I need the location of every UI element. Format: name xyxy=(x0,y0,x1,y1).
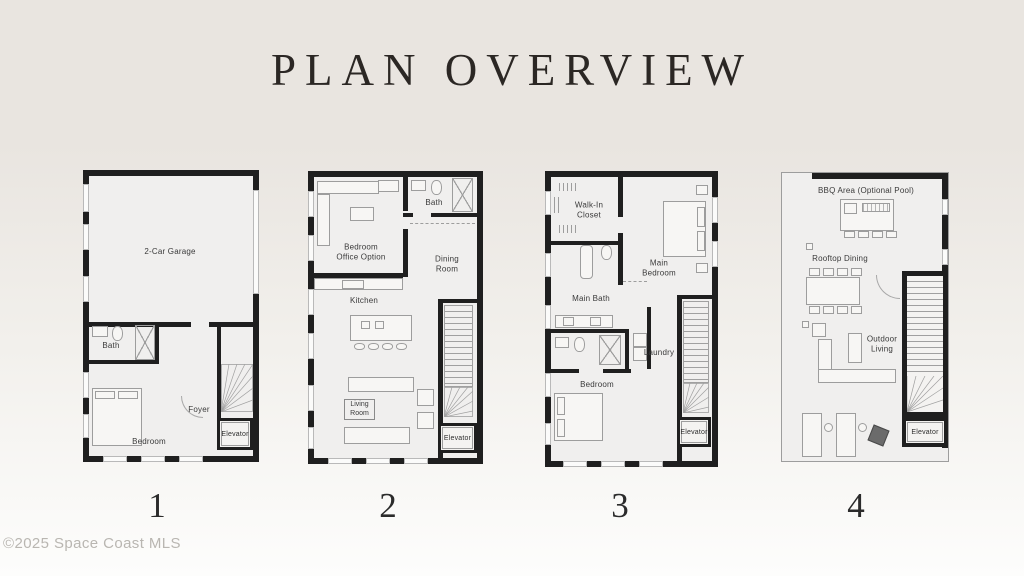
window-gap xyxy=(83,276,89,302)
window-gap xyxy=(103,456,127,462)
wall xyxy=(438,299,477,303)
window-gap xyxy=(639,461,663,467)
wall xyxy=(812,173,948,179)
sink xyxy=(555,337,569,348)
floor-plan-1: Elevator 2-Car Garage Bath Bedroom Foyer xyxy=(83,170,259,462)
page-title: PLAN OVERVIEW xyxy=(0,44,1024,96)
window-gap xyxy=(179,456,203,462)
nightstand xyxy=(696,263,708,273)
sink xyxy=(590,317,601,326)
window-gap xyxy=(308,333,314,359)
room-label-bbq: BBQ Area (Optional Pool) xyxy=(818,186,914,196)
stair-fan xyxy=(907,376,943,412)
wall xyxy=(403,213,413,217)
sofa xyxy=(348,377,414,392)
chair xyxy=(823,306,834,314)
floor-plan-2: Living Room Elevator Bedroom Office Opti… xyxy=(308,171,483,464)
chair xyxy=(851,306,862,314)
window-gap xyxy=(545,253,551,277)
stool xyxy=(396,343,407,350)
window-gap xyxy=(942,249,948,265)
sink xyxy=(563,317,574,326)
pillow xyxy=(697,207,705,227)
wall xyxy=(89,360,159,364)
stool xyxy=(844,231,855,238)
island-sink xyxy=(375,321,384,329)
chair xyxy=(809,306,820,314)
wall xyxy=(551,329,625,333)
sofa xyxy=(344,427,410,444)
window-gap xyxy=(141,456,165,462)
toilet xyxy=(574,337,585,352)
elevator-label: Elevator xyxy=(681,421,707,443)
window-gap xyxy=(712,241,718,267)
window-gap xyxy=(83,414,89,438)
hanger-rod xyxy=(559,183,577,191)
wall xyxy=(551,369,579,373)
door-gap xyxy=(83,184,89,212)
door-arc xyxy=(876,275,900,299)
wall xyxy=(677,295,712,299)
washer-dryer xyxy=(633,333,647,347)
window-gap xyxy=(563,461,587,467)
room-label-kitchen: Kitchen xyxy=(350,296,378,306)
stool xyxy=(886,231,897,238)
elevator-label: Elevator xyxy=(907,422,943,442)
chair xyxy=(823,268,834,276)
sofa xyxy=(317,194,330,246)
wall xyxy=(942,215,948,249)
elevator: Elevator xyxy=(902,417,948,447)
window-gap xyxy=(366,458,390,464)
grill xyxy=(862,203,890,212)
stool xyxy=(872,231,883,238)
side-table xyxy=(858,423,867,432)
room-label-dining: Dining Room xyxy=(435,255,459,276)
elevator: Elevator xyxy=(677,417,711,447)
hidden-wall xyxy=(623,281,647,282)
room-label-garage: 2-Car Garage xyxy=(144,247,195,257)
armchair xyxy=(417,389,434,406)
stool xyxy=(368,343,379,350)
bbq-sink xyxy=(844,203,857,214)
window-gap xyxy=(545,423,551,445)
plan-number-4: 4 xyxy=(847,486,865,526)
wall xyxy=(625,329,629,369)
plan-number-1: 1 xyxy=(148,486,166,526)
hanger-rod xyxy=(554,197,562,213)
window-gap xyxy=(328,458,352,464)
toilet xyxy=(431,180,442,195)
window-gap xyxy=(308,385,314,411)
garage-door-gap xyxy=(253,190,259,294)
elevator-label: Elevator xyxy=(442,427,473,449)
closet-hatch xyxy=(410,223,475,224)
stool xyxy=(382,343,393,350)
stairs xyxy=(444,305,473,417)
room-label-outdoor-living: Outdoor Living xyxy=(867,335,897,356)
pillow xyxy=(557,419,565,437)
floor-plan-4: Elevator BBQ Area (Optional Pool) Roofto… xyxy=(781,172,949,462)
wall xyxy=(155,322,159,364)
window-gap xyxy=(308,235,314,261)
stairwell xyxy=(902,271,948,417)
elevator: Elevator xyxy=(438,423,477,453)
chair xyxy=(837,306,848,314)
pillow xyxy=(557,397,565,415)
stair-fan xyxy=(683,383,709,413)
window-gap xyxy=(308,427,314,449)
room-label-bath: Bath xyxy=(425,198,442,208)
side-table xyxy=(812,323,826,337)
stool xyxy=(858,231,869,238)
cooktop xyxy=(342,280,364,289)
room-label-main-bath: Main Bath xyxy=(572,294,610,304)
stairs xyxy=(221,364,253,412)
room-label-closet: Walk-In Closet xyxy=(575,201,603,222)
room-label-bedroom: Bedroom xyxy=(132,437,166,447)
chair xyxy=(851,268,862,276)
room-label-bath: Bath xyxy=(102,341,119,351)
lounge-chair xyxy=(802,413,822,457)
stairs xyxy=(683,301,709,413)
island-sink xyxy=(361,321,370,329)
room-label-bedroom-office: Bedroom Office Option xyxy=(336,243,385,264)
room-label-foyer: Foyer xyxy=(188,405,209,415)
wall xyxy=(209,322,253,327)
wall xyxy=(431,213,477,217)
towel xyxy=(867,424,889,446)
elevator-label: Elevator xyxy=(221,422,249,446)
window-gap xyxy=(942,199,948,215)
lounge-chair xyxy=(836,413,856,457)
plan-number-3: 3 xyxy=(611,486,629,526)
coffee-table xyxy=(350,207,374,221)
room-label-living: Living Room xyxy=(344,399,375,420)
window-gap xyxy=(712,197,718,223)
room-label-rooftop-dining: Rooftop Dining xyxy=(812,254,868,264)
stair-fan xyxy=(444,387,473,417)
wall xyxy=(618,177,623,217)
room-label-main-bedroom: Main Bedroom xyxy=(633,259,686,280)
window-gap xyxy=(545,191,551,215)
window-gap xyxy=(308,191,314,217)
window-gap xyxy=(308,289,314,315)
shower xyxy=(452,178,473,212)
pillow xyxy=(95,391,115,399)
planter xyxy=(806,243,813,250)
hanger-rod xyxy=(559,225,577,233)
wall xyxy=(647,307,651,369)
chair xyxy=(809,268,820,276)
room-label-bedroom: Bedroom xyxy=(580,380,614,390)
sink xyxy=(411,180,426,191)
coffee-table xyxy=(848,333,862,363)
armchair xyxy=(417,412,434,429)
window-gap xyxy=(404,458,428,464)
chair xyxy=(837,268,848,276)
window-gap xyxy=(545,305,551,329)
nightstand xyxy=(696,185,708,195)
window-gap xyxy=(83,224,89,250)
planter xyxy=(802,321,809,328)
window-gap xyxy=(601,461,625,467)
toilet xyxy=(112,326,123,341)
wall xyxy=(403,177,408,211)
sink xyxy=(92,326,108,337)
shower xyxy=(135,325,155,360)
window-gap xyxy=(83,372,89,398)
plan-number-2: 2 xyxy=(379,486,397,526)
side-table xyxy=(824,423,833,432)
wall xyxy=(942,173,948,199)
stool xyxy=(354,343,365,350)
stair-fan xyxy=(221,364,253,412)
wall xyxy=(603,369,631,373)
sofa xyxy=(317,181,379,194)
shower xyxy=(599,335,621,365)
sofa xyxy=(818,369,896,383)
wall xyxy=(618,245,623,285)
window-gap xyxy=(545,373,551,397)
copyright-watermark: ©2025 Space Coast MLS xyxy=(3,535,181,552)
pillow xyxy=(118,391,138,399)
elevator: Elevator xyxy=(217,418,253,450)
dining-table xyxy=(806,277,860,305)
room-label-laundry: Laundry xyxy=(644,348,674,358)
pillow xyxy=(697,231,705,251)
wall xyxy=(403,229,408,277)
desk xyxy=(378,180,399,192)
bathtub xyxy=(580,245,593,279)
toilet xyxy=(601,245,612,260)
floor-plan-3: Elevator Walk-In Closet Main Bedroom Mai… xyxy=(545,171,718,467)
